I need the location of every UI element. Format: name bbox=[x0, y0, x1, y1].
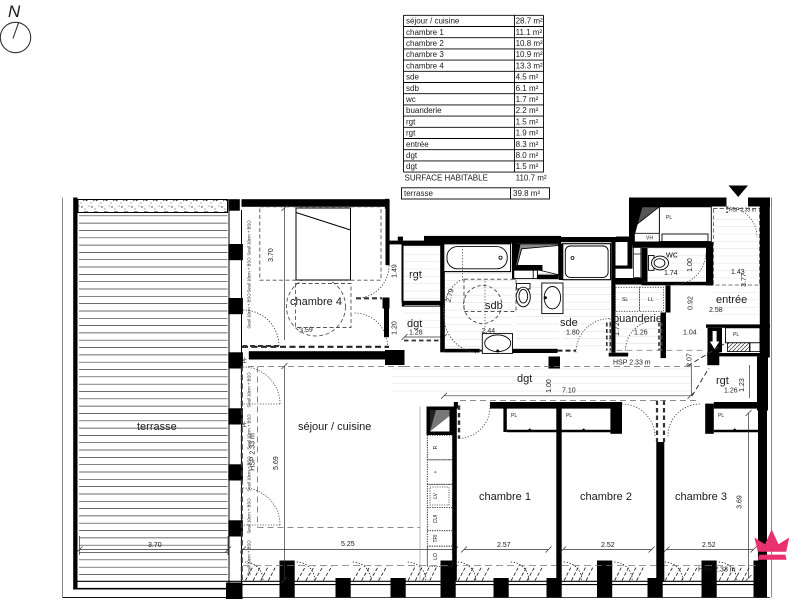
svg-text:PF: PF bbox=[243, 421, 249, 427]
svg-text:chambre 1: chambre 1 bbox=[406, 28, 444, 37]
svg-text:39.8 m²: 39.8 m² bbox=[513, 189, 540, 198]
svg-text:PL: PL bbox=[566, 413, 572, 419]
svg-text:5.25: 5.25 bbox=[341, 541, 355, 548]
svg-text:rgt: rgt bbox=[406, 117, 416, 126]
svg-text:10.9 m²: 10.9 m² bbox=[516, 50, 543, 59]
svg-text:1.04: 1.04 bbox=[683, 330, 697, 337]
svg-text:7.10: 7.10 bbox=[562, 388, 576, 395]
svg-text:1.5 m²: 1.5 m² bbox=[516, 162, 539, 171]
svg-text:entrée: entrée bbox=[716, 294, 747, 306]
svg-text:4.5 m²: 4.5 m² bbox=[516, 73, 539, 82]
svg-text:1.9 m²: 1.9 m² bbox=[516, 129, 539, 138]
svg-text:2.57: 2.57 bbox=[497, 542, 511, 549]
svg-text:Seuil 10cm + BSO: Seuil 10cm + BSO bbox=[247, 220, 252, 256]
svg-text:HSP 2.33 m: HSP 2.33 m bbox=[613, 360, 651, 367]
svg-text:1.23: 1.23 bbox=[739, 378, 746, 392]
svg-text:HSP 2.33 m: HSP 2.33 m bbox=[698, 567, 736, 574]
svg-text:6.1 m²: 6.1 m² bbox=[516, 84, 539, 93]
svg-text:entrée: entrée bbox=[406, 140, 429, 149]
svg-text:13.3 m²: 13.3 m² bbox=[516, 61, 543, 70]
svg-text:PL: PL bbox=[733, 332, 739, 338]
svg-text:1.74: 1.74 bbox=[664, 270, 678, 277]
svg-text:rgt: rgt bbox=[409, 269, 422, 281]
svg-text:chambre 3: chambre 3 bbox=[406, 50, 444, 59]
svg-text:PL: PL bbox=[718, 413, 724, 419]
svg-text:PF: PF bbox=[243, 357, 249, 363]
svg-text:3.69: 3.69 bbox=[737, 495, 744, 509]
svg-text:chambre 3: chambre 3 bbox=[675, 491, 727, 503]
svg-text:PL: PL bbox=[511, 413, 517, 419]
svg-text:2.52: 2.52 bbox=[702, 542, 716, 549]
svg-text:8.3 m²: 8.3 m² bbox=[516, 140, 539, 149]
svg-text:1.7 m²: 1.7 m² bbox=[516, 95, 539, 104]
svg-text:PL: PL bbox=[666, 215, 672, 221]
svg-text:chambre 4: chambre 4 bbox=[290, 296, 342, 308]
svg-text:chambre 4: chambre 4 bbox=[406, 61, 444, 70]
svg-text:sde: sde bbox=[560, 317, 578, 329]
svg-text:1.80: 1.80 bbox=[566, 330, 580, 337]
svg-text:chambre 2: chambre 2 bbox=[580, 491, 632, 503]
svg-text:Seuil 10cm + BSO: Seuil 10cm + BSO bbox=[247, 372, 252, 408]
svg-text:3.70: 3.70 bbox=[268, 248, 275, 262]
svg-text:N: N bbox=[8, 2, 21, 21]
svg-text:CUI: CUI bbox=[433, 515, 439, 524]
svg-text:+: + bbox=[433, 471, 439, 474]
svg-text:1.26: 1.26 bbox=[634, 330, 648, 337]
svg-text:HSP 2.33 m: HSP 2.33 m bbox=[250, 433, 257, 471]
svg-text:28.7 m²: 28.7 m² bbox=[516, 17, 543, 26]
svg-text:sde: sde bbox=[406, 73, 419, 82]
svg-text:wc: wc bbox=[405, 95, 416, 104]
svg-text:R: R bbox=[433, 445, 439, 449]
svg-text:LO: LO bbox=[433, 553, 439, 560]
svg-text:dgt: dgt bbox=[406, 151, 418, 160]
svg-text:SL: SL bbox=[622, 297, 628, 303]
svg-text:dgt: dgt bbox=[517, 373, 532, 385]
svg-text:sdb: sdb bbox=[406, 84, 419, 93]
svg-text:2.58: 2.58 bbox=[709, 307, 723, 314]
svg-text:1.49: 1.49 bbox=[392, 264, 399, 278]
svg-text:1.26: 1.26 bbox=[724, 388, 738, 395]
svg-text:buanderie: buanderie bbox=[406, 106, 442, 115]
svg-text:10.8 m²: 10.8 m² bbox=[516, 39, 543, 48]
svg-text:SURFACE HABITABLE: SURFACE HABITABLE bbox=[405, 174, 488, 183]
svg-text:chambre 2: chambre 2 bbox=[406, 39, 444, 48]
svg-text:Seuil 10cm + BSO: Seuil 10cm + BSO bbox=[247, 257, 252, 293]
svg-text:TRI: TRI bbox=[433, 534, 439, 542]
svg-text:rgt: rgt bbox=[406, 129, 416, 138]
svg-text:11.1 m²: 11.1 m² bbox=[516, 28, 543, 37]
svg-text:1.20: 1.20 bbox=[392, 321, 399, 335]
svg-text:1.5 m²: 1.5 m² bbox=[516, 117, 539, 126]
svg-text:LL: LL bbox=[648, 297, 654, 303]
svg-text:dgt: dgt bbox=[407, 318, 422, 330]
svg-text:5.69: 5.69 bbox=[273, 456, 280, 470]
svg-text:terrasse: terrasse bbox=[404, 189, 433, 198]
svg-text:chambre 1: chambre 1 bbox=[479, 491, 531, 503]
svg-text:1.28: 1.28 bbox=[409, 330, 423, 337]
svg-text:terrasse: terrasse bbox=[137, 421, 177, 433]
svg-text:rgt: rgt bbox=[716, 375, 729, 387]
svg-text:1.00: 1.00 bbox=[687, 258, 694, 272]
svg-text:0.92: 0.92 bbox=[688, 296, 695, 310]
svg-text:3.70: 3.70 bbox=[148, 542, 162, 549]
svg-text:8.0 m²: 8.0 m² bbox=[516, 151, 539, 160]
svg-text:VH: VH bbox=[646, 236, 653, 242]
svg-text:séjour / cuisine: séjour / cuisine bbox=[298, 421, 371, 433]
svg-text:1.72: 1.72 bbox=[614, 322, 621, 336]
svg-text:séjour / cuisine: séjour / cuisine bbox=[406, 17, 460, 26]
svg-text:2.52: 2.52 bbox=[601, 542, 615, 549]
svg-text:Seuil 10cm + BSO: Seuil 10cm + BSO bbox=[247, 498, 252, 534]
svg-text:1.00: 1.00 bbox=[546, 379, 553, 393]
svg-text:LV: LV bbox=[433, 492, 439, 498]
svg-text:110.7 m²: 110.7 m² bbox=[516, 174, 547, 183]
svg-text:2.2 m²: 2.2 m² bbox=[516, 106, 539, 115]
svg-text:dgt: dgt bbox=[406, 162, 418, 171]
svg-text:sdb: sdb bbox=[485, 300, 503, 312]
